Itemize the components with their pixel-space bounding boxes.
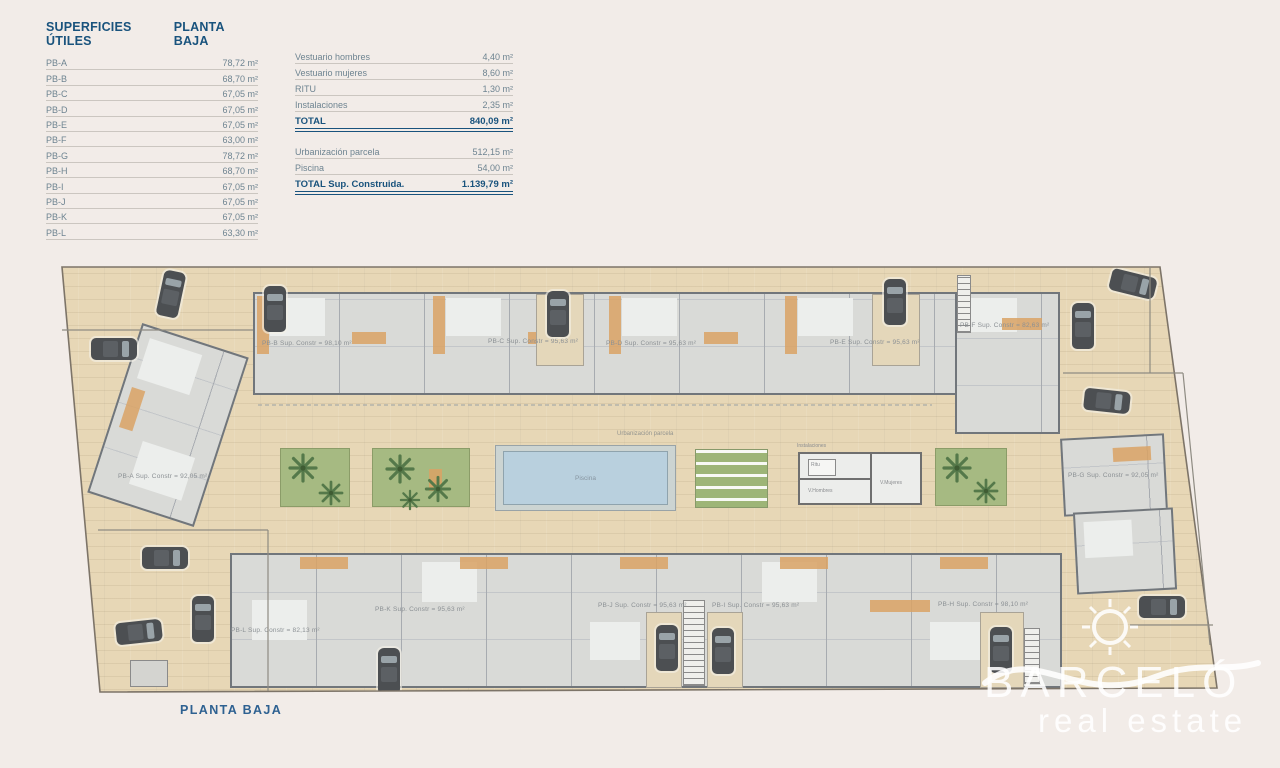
- total-value: 1.139,79 m²: [462, 179, 513, 190]
- room: [252, 600, 307, 640]
- unit-code: PB-K: [46, 212, 67, 222]
- terrace-accent: [460, 557, 508, 569]
- summary-label: Urbanización parcela: [295, 147, 380, 157]
- total-row: TOTAL Sup. Construida.1.139,79 m²: [295, 175, 513, 192]
- floorplan-page: SUPERFICIES ÚTILES PLANTA BAJA PB-A78,72…: [0, 0, 1280, 768]
- table-row: PB-C67,05 m²: [46, 86, 258, 101]
- unit-code: PB-E: [46, 120, 67, 130]
- summary-label: RITU: [295, 84, 316, 94]
- table-row: RITU1,30 m²: [295, 80, 513, 96]
- terrace-accent: [785, 296, 797, 354]
- car-icon: [712, 628, 734, 674]
- room: [930, 622, 985, 660]
- summary-value: 8,60 m²: [482, 68, 513, 78]
- room: [622, 298, 677, 336]
- total-value: 840,09 m²: [470, 116, 513, 127]
- table-subtitle: PLANTA BAJA: [174, 20, 258, 48]
- bench: [429, 469, 442, 491]
- unit-code: PB-C: [46, 89, 68, 99]
- terrace-accent: [1113, 446, 1152, 462]
- garden: [935, 448, 1007, 506]
- unit-area: 63,30 m²: [222, 228, 258, 238]
- unit-label-pb-f: PB-F Sup. Constr = 82,63 m²: [960, 322, 1049, 329]
- summary-label: Instalaciones: [295, 100, 348, 110]
- room: [446, 298, 501, 336]
- table-row: PB-L63,30 m²: [46, 224, 258, 239]
- table-row: PB-B68,70 m²: [46, 70, 258, 85]
- car-icon: [547, 291, 569, 337]
- table-title: SUPERFICIES ÚTILES: [46, 20, 174, 48]
- garden: [372, 448, 470, 507]
- room: [137, 338, 202, 395]
- brand-name: Barceló: [984, 658, 1243, 708]
- car-icon: [884, 279, 906, 325]
- terrace-accent: [940, 557, 988, 569]
- summary-value: 2,35 m²: [482, 100, 513, 110]
- car-icon: [142, 547, 188, 569]
- table-row: PB-I67,05 m²: [46, 178, 258, 193]
- unit-area: 67,05 m²: [222, 212, 258, 222]
- unit-code: PB-H: [46, 166, 68, 176]
- unit-area: 68,70 m²: [222, 166, 258, 176]
- car-icon: [1139, 596, 1185, 618]
- outbuilding: [130, 660, 168, 687]
- terrace-accent: [300, 557, 348, 569]
- table-row: Vestuario hombres4,40 m²: [295, 48, 513, 64]
- room: [1083, 520, 1133, 558]
- building-pb-g-lower: [1073, 507, 1177, 594]
- ritu-label: Ritu: [811, 462, 820, 468]
- unit-label-pb-l: PB-L Sup. Constr = 82,13 m²: [231, 627, 320, 634]
- car-icon: [155, 269, 186, 319]
- vestuario-mujeres-label: V.Mujeres: [880, 480, 902, 486]
- car-icon: [192, 596, 214, 642]
- terrace-accent: [620, 557, 668, 569]
- table-row: Vestuario mujeres8,60 m²: [295, 64, 513, 80]
- table-row: PB-H68,70 m²: [46, 163, 258, 178]
- unit-label-pb-e: PB-E Sup. Constr = 95,63 m²: [830, 339, 920, 346]
- unit-code: PB-B: [46, 74, 67, 84]
- terrace-accent: [704, 332, 738, 344]
- car-icon: [91, 338, 137, 360]
- unit-label-pb-g: PB-G Sup. Constr = 92,05 m²: [1068, 472, 1158, 479]
- car-icon: [115, 619, 163, 646]
- unit-label-pb-b: PB-B Sup. Constr = 98,10 m²: [262, 340, 352, 347]
- table-row: Urbanización parcela512,15 m²: [295, 143, 513, 159]
- swimming-pool: Piscina: [503, 451, 668, 505]
- terrace-accent: [433, 296, 445, 354]
- car-icon: [656, 625, 678, 671]
- table-row: Instalaciones2,35 m²: [295, 96, 513, 112]
- pool-label: Piscina: [575, 475, 596, 482]
- wall: [870, 454, 872, 503]
- unit-code: PB-G: [46, 151, 68, 161]
- unit-area: 78,72 m²: [222, 151, 258, 161]
- surfaces-table: SUPERFICIES ÚTILES PLANTA BAJA PB-A78,72…: [46, 20, 258, 240]
- stairs: [683, 600, 705, 686]
- plan-caption: PLANTA BAJA: [180, 703, 282, 717]
- pergola: [695, 449, 768, 508]
- unit-area: 67,05 m²: [222, 120, 258, 130]
- unit-code: PB-F: [46, 135, 67, 145]
- total-label: TOTAL Sup. Construida.: [295, 179, 404, 190]
- unit-code: PB-I: [46, 182, 64, 192]
- total-label: TOTAL: [295, 116, 326, 127]
- unit-code: PB-J: [46, 197, 66, 207]
- wall: [800, 478, 870, 480]
- table-gap: [295, 132, 513, 143]
- unit-label-pb-a: PB-A Sup. Constr = 92,05 m²: [118, 473, 207, 480]
- summary-table: Vestuario hombres4,40 m² Vestuario mujer…: [295, 48, 513, 195]
- summary-label: Vestuario hombres: [295, 52, 370, 62]
- unit-label-pb-c: PB-C Sup. Constr = 95,63 m²: [488, 338, 578, 345]
- summary-label: Vestuario mujeres: [295, 68, 367, 78]
- unit-label-pb-h: PB-H Sup. Constr = 98,10 m²: [938, 601, 1028, 608]
- room: [590, 622, 640, 660]
- terrace-accent: [352, 332, 386, 344]
- room: [129, 441, 195, 501]
- terrace-accent: [870, 600, 930, 612]
- instalaciones-label: Instalaciones: [797, 443, 826, 449]
- table-row: Piscina54,00 m²: [295, 159, 513, 175]
- summary-value: 512,15 m²: [472, 147, 513, 157]
- garden: [280, 448, 350, 507]
- summary-value: 4,40 m²: [482, 52, 513, 62]
- car-icon: [1083, 388, 1131, 415]
- urbanization-label: Urbanización parcela: [617, 431, 673, 437]
- unit-code: PB-D: [46, 105, 68, 115]
- vestuario-hombres-label: V.Hombres: [808, 488, 833, 494]
- unit-area: 63,00 m²: [222, 135, 258, 145]
- car-icon: [1072, 303, 1094, 349]
- double-rule: [295, 192, 513, 195]
- unit-label-pb-k: PB-K Sup. Constr = 95,63 m²: [375, 606, 465, 613]
- summary-label: Piscina: [295, 163, 324, 173]
- unit-area: 67,05 m²: [222, 105, 258, 115]
- table-row: PB-E67,05 m²: [46, 117, 258, 132]
- unit-area: 67,05 m²: [222, 89, 258, 99]
- surfaces-table-header: SUPERFICIES ÚTILES PLANTA BAJA: [46, 20, 258, 48]
- unit-code: PB-L: [46, 228, 66, 238]
- unit-label-pb-i: PB-I Sup. Constr = 95,63 m²: [712, 602, 799, 609]
- car-icon: [264, 286, 286, 332]
- summary-value: 54,00 m²: [477, 163, 513, 173]
- services-building: Ritu V.Hombres V.Mujeres: [798, 452, 922, 505]
- table-row: PB-A78,72 m²: [46, 55, 258, 70]
- unit-label-pb-j: PB-J Sup. Constr = 95,63 m²: [598, 602, 687, 609]
- table-row: PB-K67,05 m²: [46, 209, 258, 224]
- brand-tagline: real estate: [1038, 702, 1247, 740]
- unit-area: 67,05 m²: [222, 197, 258, 207]
- unit-area: 68,70 m²: [222, 74, 258, 84]
- room: [798, 298, 853, 336]
- car-icon: [378, 648, 400, 694]
- table-row: PB-G78,72 m²: [46, 147, 258, 162]
- total-row: TOTAL840,09 m²: [295, 112, 513, 129]
- car-icon: [1108, 268, 1158, 300]
- unit-area: 67,05 m²: [222, 182, 258, 192]
- table-row: PB-F63,00 m²: [46, 132, 258, 147]
- terrace-accent: [119, 387, 145, 431]
- unit-code: PB-A: [46, 58, 67, 68]
- unit-area: 78,72 m²: [222, 58, 258, 68]
- terrace-accent: [780, 557, 828, 569]
- table-row: PB-J67,05 m²: [46, 194, 258, 209]
- unit-label-pb-d: PB-D Sup. Constr = 95,63 m²: [606, 340, 696, 347]
- table-row: PB-D67,05 m²: [46, 101, 258, 116]
- summary-value: 1,30 m²: [482, 84, 513, 94]
